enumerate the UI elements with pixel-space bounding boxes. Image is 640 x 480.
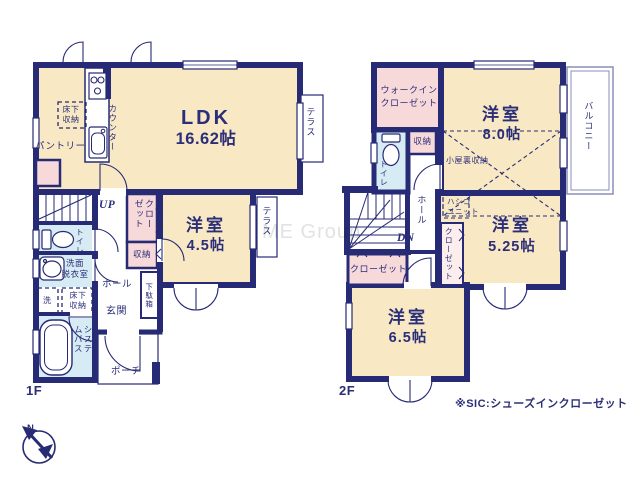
label-bath: システムバス [68,325,92,359]
label-up: UP [99,199,115,213]
label-toilet-1f: トイレ [75,228,84,256]
label-underfloor-storage-wash: 床下収納 [68,291,88,310]
compass-north-label: N [27,423,34,434]
bedroom525-size: 5.25帖 [462,239,562,256]
label-terrace-ldk: テラス [305,107,315,153]
bedroom8-size: 8.0帖 [452,127,552,144]
label-closet-tall-2f: クローゼット [444,227,453,285]
ldk-name: LDK [158,106,254,130]
bedroom525-name: 洋室 [462,216,562,236]
label-pantry: パントリー [35,141,85,152]
floor2-label: 2F [339,383,355,399]
toilet-icon-1f [42,230,74,249]
label-counter: カウンター [107,104,117,156]
label-dn: DN [397,232,415,246]
label-shoe-box: 下駄箱 [144,283,153,313]
kitchen-sink-icon [89,127,107,158]
sic-note: ※SIC:シューズインクローゼット [455,398,628,411]
bedroom8-name: 洋室 [452,105,552,125]
label-washroom: 洗面 脱衣室 [56,258,94,280]
label-balcony: バルコニー [583,101,593,157]
label-closet-1f: クローゼット [128,199,154,233]
label-ladder-unit: ハシゴ ユニット [447,197,479,217]
label-laundry: 洗 [43,296,52,306]
label-closet-wide-2f: クローゼット [350,264,406,275]
label-hall-1f: ホール [102,279,132,290]
label-toilet-2f: トイレ [379,160,388,188]
label-underfloor-storage-kitchen: 床下収納 [61,105,81,124]
label-porch: ポーチ [111,366,141,377]
bedroom65-size: 6.5帖 [358,330,458,347]
watermark: ME Group [262,220,361,244]
ldk-size: 16.62帖 [148,130,264,150]
label-attic: 小屋裏収納 [446,156,489,166]
floorplan-page: LDK 16.62帖 床下収納 カウンター パントリー テラス UP クローゼッ… [0,0,640,480]
floor1-label: 1F [26,383,42,399]
label-storage-2f: 収納 [409,136,436,146]
stove-icon [89,73,106,99]
bedroom45-name: 洋室 [160,216,252,236]
label-entrance: 玄関 [106,306,127,318]
label-wic: ウォークインクローゼット [377,84,441,109]
bedroom45-size: 4.5帖 [160,238,252,255]
pantry-box [36,160,60,186]
bedroom65-name: 洋室 [358,308,458,328]
label-hall-2f: ホール [416,195,426,229]
label-storage-1f: 収納 [128,249,156,259]
